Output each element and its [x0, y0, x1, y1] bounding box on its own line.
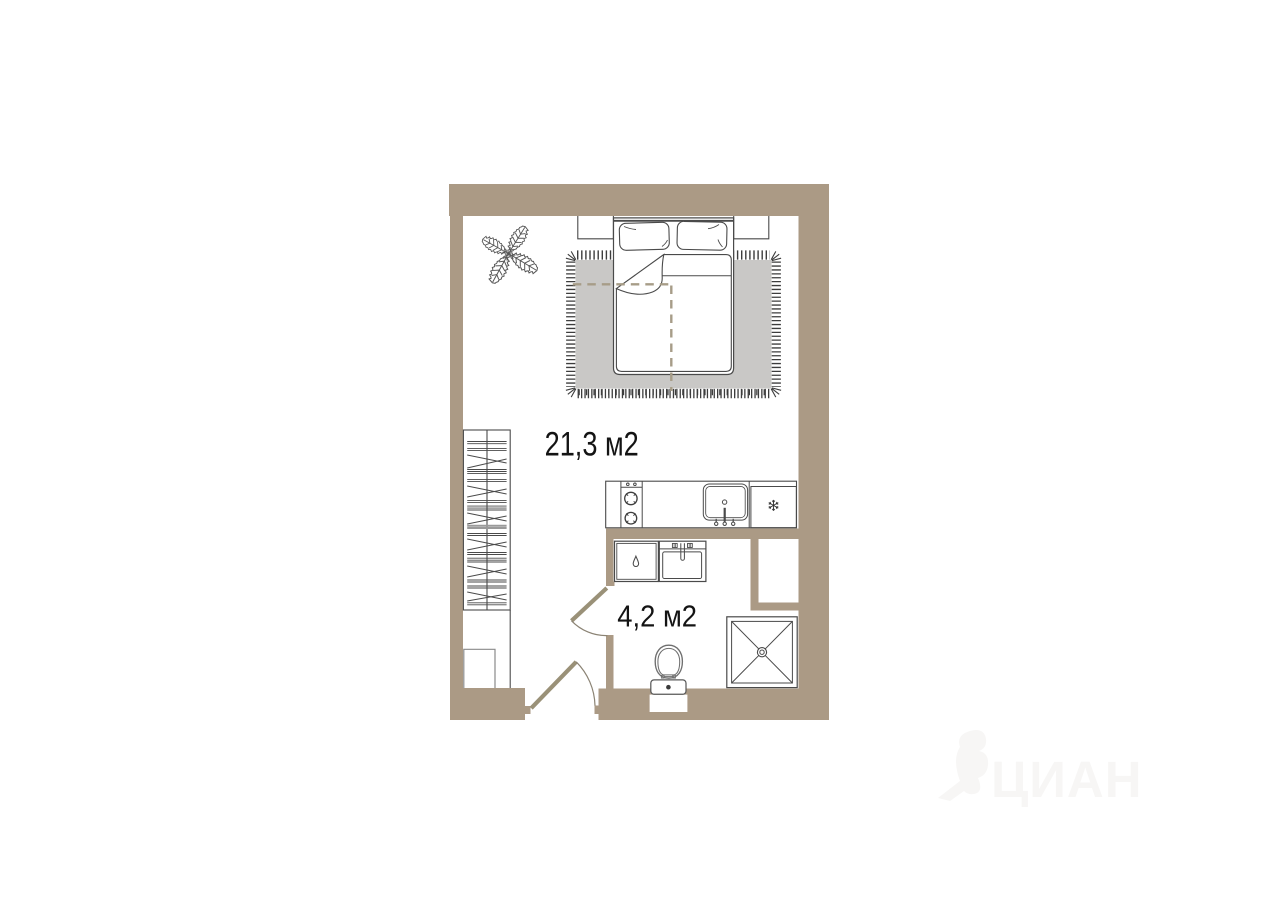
svg-text:ЦИАН: ЦИАН — [991, 751, 1143, 808]
svg-text:4,2 м2: 4,2 м2 — [617, 600, 697, 634]
svg-text:21,3 м2: 21,3 м2 — [545, 426, 639, 464]
